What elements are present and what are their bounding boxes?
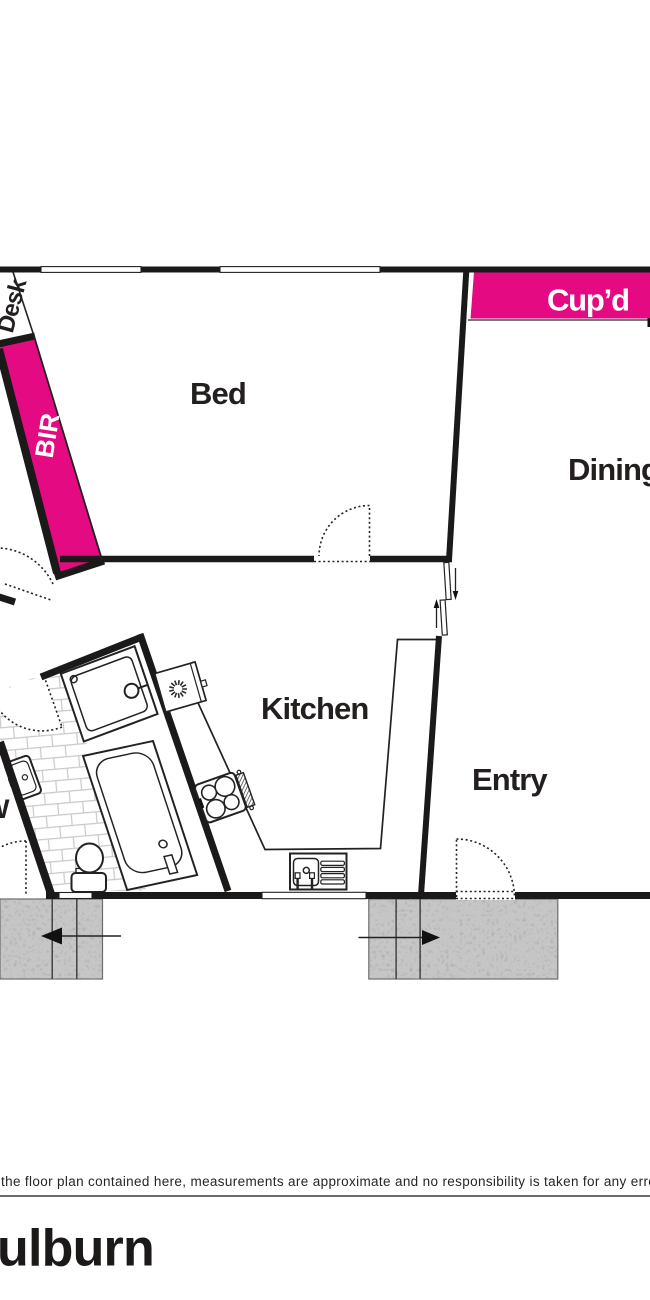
svg-text:Entry: Entry <box>472 762 548 797</box>
svg-text:Kitchen: Kitchen <box>261 691 368 726</box>
svg-text:Bed: Bed <box>190 376 246 411</box>
svg-text:ulburn: ulburn <box>0 1220 154 1278</box>
svg-text:Dining: Dining <box>568 452 650 487</box>
svg-text:Cup’d: Cup’d <box>547 283 629 318</box>
svg-text:W: W <box>0 794 10 824</box>
svg-text:the floor plan contained here,: the floor plan contained here, measureme… <box>1 1174 650 1189</box>
